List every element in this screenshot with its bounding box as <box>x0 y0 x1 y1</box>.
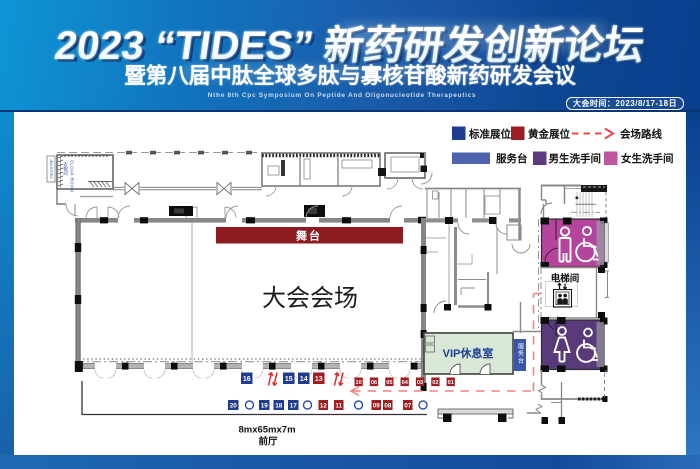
svg-text:服务台: 服务台 <box>517 343 524 365</box>
svg-text:11: 11 <box>335 402 342 409</box>
svg-text:05: 05 <box>386 380 392 386</box>
svg-text:19: 19 <box>261 402 269 409</box>
svg-text:08: 08 <box>384 402 392 409</box>
svg-text:16: 16 <box>243 376 251 383</box>
svg-text:06: 06 <box>371 380 377 386</box>
svg-text:07: 07 <box>404 402 412 409</box>
svg-text:03: 03 <box>417 380 423 386</box>
svg-text:衣帽间: 衣帽间 <box>63 161 69 177</box>
svg-text:20: 20 <box>230 402 238 409</box>
svg-text:12: 12 <box>320 402 328 409</box>
svg-text:18: 18 <box>275 402 283 409</box>
svg-text:VIP休息室: VIP休息室 <box>443 346 494 360</box>
svg-text:10: 10 <box>356 380 362 386</box>
svg-text:舞台: 舞台 <box>296 229 322 243</box>
svg-text:女生洗手间: 女生洗手间 <box>621 152 674 165</box>
svg-text:前厅: 前厅 <box>258 436 278 448</box>
svg-text:电梯间: 电梯间 <box>551 273 580 285</box>
svg-text:13: 13 <box>315 376 323 383</box>
svg-text:17: 17 <box>290 402 298 409</box>
svg-text:04: 04 <box>402 380 409 386</box>
svg-text:大会会场: 大会会场 <box>262 285 358 312</box>
svg-text:黄金展位: 黄金展位 <box>528 128 570 141</box>
svg-text:09: 09 <box>373 402 381 409</box>
svg-text:01: 01 <box>448 380 454 386</box>
svg-text:8mx65mx7m: 8mx65mx7m <box>238 425 295 436</box>
svg-text:服务台: 服务台 <box>496 152 528 165</box>
svg-text:男生洗手间: 男生洗手间 <box>549 152 602 165</box>
svg-text:14: 14 <box>300 376 308 383</box>
svg-text:标准展位: 标准展位 <box>468 128 511 141</box>
svg-text:CLOAK ROOM: CLOAK ROOM <box>70 160 75 192</box>
svg-text:JEN HOTEL: JEN HOTEL <box>49 159 53 179</box>
svg-text:会场路线: 会场路线 <box>620 128 662 141</box>
svg-text:15: 15 <box>285 376 293 383</box>
svg-text:02: 02 <box>432 380 438 386</box>
